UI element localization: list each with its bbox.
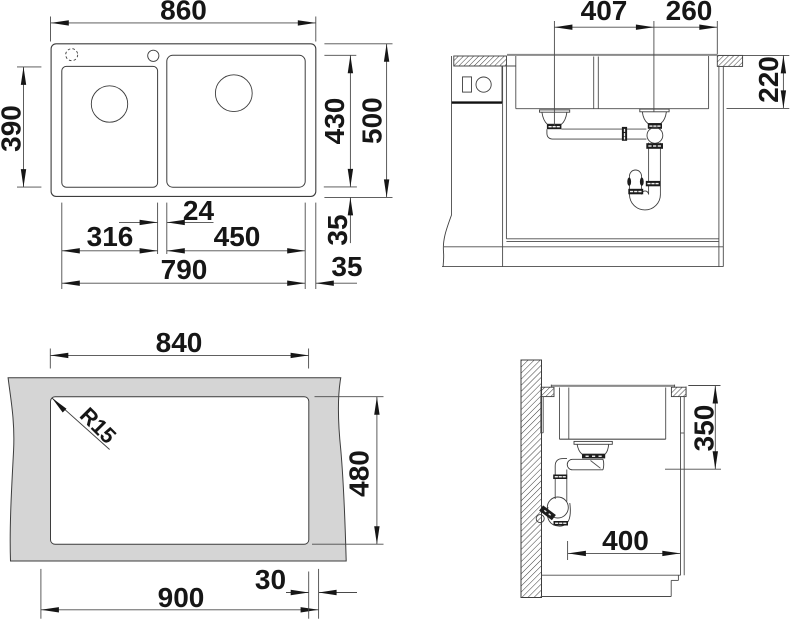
svg-text:840: 840 (156, 327, 203, 358)
svg-text:220: 220 (753, 56, 784, 103)
svg-text:450: 450 (214, 221, 261, 252)
svg-text:480: 480 (344, 450, 375, 497)
svg-text:390: 390 (0, 105, 26, 152)
svg-text:350: 350 (689, 405, 720, 452)
svg-text:35: 35 (331, 251, 362, 282)
svg-text:500: 500 (357, 97, 388, 144)
svg-text:400: 400 (602, 525, 649, 556)
svg-text:316: 316 (87, 221, 134, 252)
svg-text:900: 900 (158, 582, 205, 613)
svg-text:260: 260 (666, 0, 713, 26)
svg-text:430: 430 (319, 98, 350, 145)
svg-text:860: 860 (160, 0, 207, 26)
svg-text:407: 407 (581, 0, 628, 26)
svg-text:35: 35 (322, 214, 353, 245)
svg-text:30: 30 (255, 564, 286, 595)
svg-text:790: 790 (161, 254, 208, 285)
svg-text:24: 24 (183, 195, 215, 226)
